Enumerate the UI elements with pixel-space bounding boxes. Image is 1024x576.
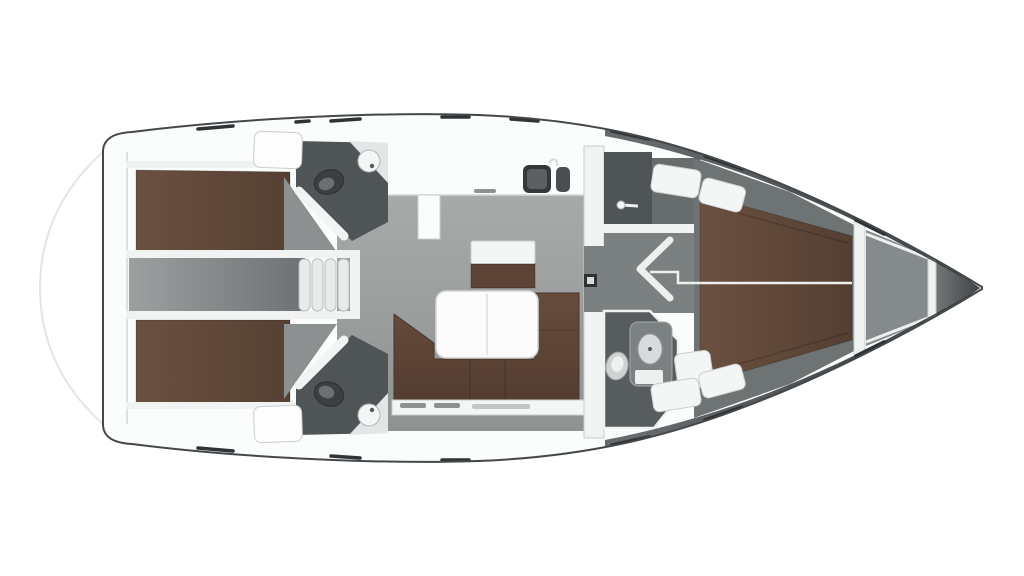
step (312, 259, 323, 311)
washbasin-aft-port (358, 150, 380, 172)
navigator-bench-top (471, 241, 535, 264)
engine-compartment (129, 258, 305, 311)
wardrobe-aft-starboard (253, 405, 302, 443)
washbasin-drain (648, 347, 652, 351)
yacht-floor-plan (0, 0, 1024, 576)
washbasin-aft-port-drain (370, 164, 374, 168)
navigator-bench-seat (471, 264, 535, 288)
wall-corridor-top (126, 250, 358, 258)
cabinet-handle-2 (434, 403, 460, 408)
floor-plan-canvas (0, 0, 1024, 576)
galley-handle (474, 189, 496, 193)
vanity-drawer (635, 370, 663, 384)
galley-sink-basin (527, 169, 547, 189)
bow-bulkhead (928, 254, 936, 322)
galley-sink-second (556, 167, 570, 192)
aft-cabin-starboard-berth (136, 320, 290, 407)
swim-platform-arc (40, 152, 103, 424)
wardrobe-aft-port (253, 131, 302, 169)
forward-bulkhead (854, 216, 865, 362)
step (299, 259, 310, 311)
cabinet-vent (472, 404, 530, 409)
step (325, 259, 336, 311)
door-latch-inner (587, 277, 594, 284)
window-dash (296, 121, 309, 122)
wall-corridor-bottom (126, 311, 358, 319)
window-dash (331, 456, 360, 458)
washbasin-aft-starboard (358, 404, 380, 426)
shower-head-icon (617, 201, 625, 209)
shower-room-floor (604, 152, 652, 226)
shower-wall (602, 224, 702, 233)
wall-companionway (350, 250, 360, 319)
window-dash (331, 119, 360, 121)
cabinet-handle-1 (400, 403, 426, 408)
galley-peninsula (418, 195, 440, 239)
aft-cabin-port-berth (136, 170, 290, 256)
step (338, 259, 349, 311)
washbasin-aft-starboard-drain (370, 408, 374, 412)
